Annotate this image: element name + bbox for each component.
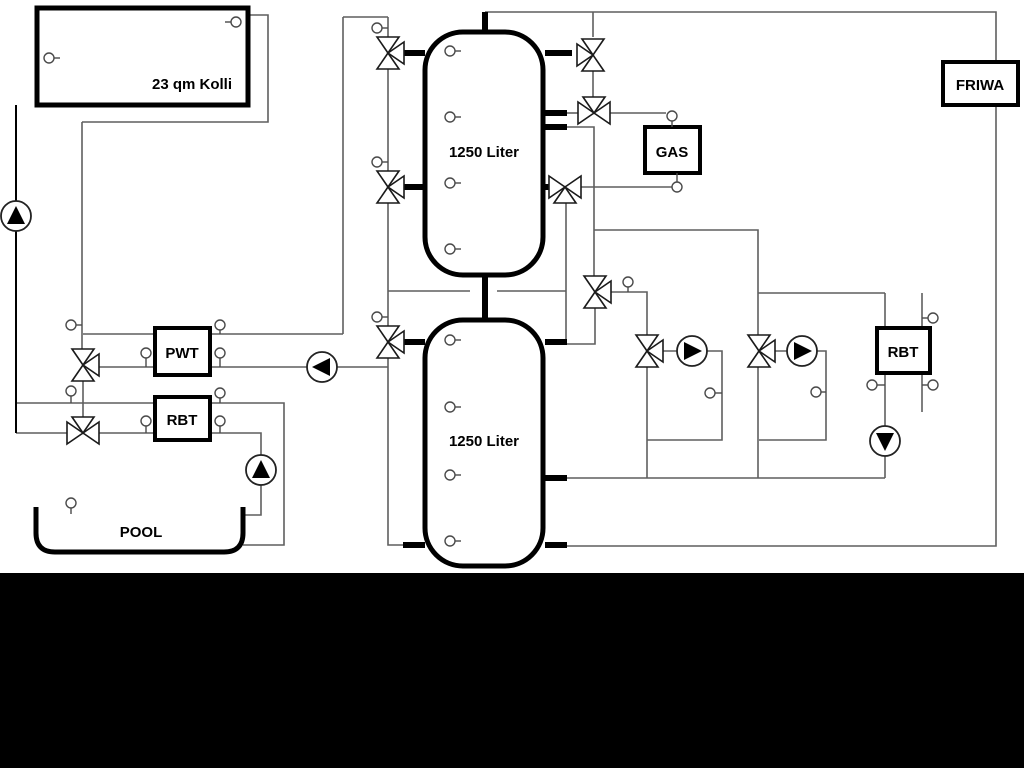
temperature-sensor-icon — [44, 53, 54, 63]
temperature-sensor-icon — [231, 17, 241, 27]
temperature-sensor-icon — [445, 335, 455, 345]
buffer-tank-1-label: 1250 Liter — [449, 144, 519, 161]
pool-label: POOL — [120, 524, 163, 541]
friwa-label: FRIWA — [956, 77, 1004, 94]
heating-schematic: 1250 Liter1250 Liter23 qm KolliPWTRBTGAS… — [0, 0, 1024, 768]
buffer-tank-2-label: 1250 Liter — [449, 433, 519, 450]
schematic-canvas: 1250 Liter1250 Liter23 qm KolliPWTRBTGAS… — [0, 0, 1024, 768]
rbt-right-label: RBT — [888, 344, 919, 361]
temperature-sensor-icon — [672, 182, 682, 192]
rbt-left-label: RBT — [167, 412, 198, 429]
pipe — [611, 292, 647, 335]
temperature-sensor-icon — [215, 416, 225, 426]
temperature-sensor-icon — [141, 348, 151, 358]
temperature-sensor-icon — [215, 320, 225, 330]
temperature-sensor-icon — [928, 313, 938, 323]
temperature-sensor-icon — [445, 470, 455, 480]
pwt-label: PWT — [165, 345, 198, 362]
temperature-sensor-icon — [372, 23, 382, 33]
temperature-sensor-icon — [445, 178, 455, 188]
temperature-sensor-icon — [445, 112, 455, 122]
temperature-sensor-icon — [66, 498, 76, 508]
pipe — [594, 230, 758, 335]
temperature-sensor-icon — [811, 387, 821, 397]
collector-label: 23 qm Kolli — [152, 76, 232, 93]
temperature-sensor-icon — [215, 388, 225, 398]
temperature-sensor-icon — [66, 386, 76, 396]
temperature-sensor-icon — [372, 312, 382, 322]
temperature-sensor-icon — [705, 388, 715, 398]
temperature-sensor-icon — [141, 416, 151, 426]
temperature-sensor-icon — [215, 348, 225, 358]
temperature-sensor-icon — [66, 320, 76, 330]
pipe — [388, 358, 403, 545]
temperature-sensor-icon — [372, 157, 382, 167]
temperature-sensor-icon — [445, 46, 455, 56]
temperature-sensor-icon — [928, 380, 938, 390]
temperature-sensor-icon — [867, 380, 877, 390]
temperature-sensor-icon — [445, 536, 455, 546]
temperature-sensor-icon — [445, 402, 455, 412]
temperature-sensor-icon — [445, 244, 455, 254]
temperature-sensor-icon — [623, 277, 633, 287]
pipe — [566, 308, 595, 344]
pipe — [566, 105, 996, 546]
temperature-sensor-icon — [667, 111, 677, 121]
bottom-black-bar — [0, 573, 1024, 768]
gas-label: GAS — [656, 144, 689, 161]
